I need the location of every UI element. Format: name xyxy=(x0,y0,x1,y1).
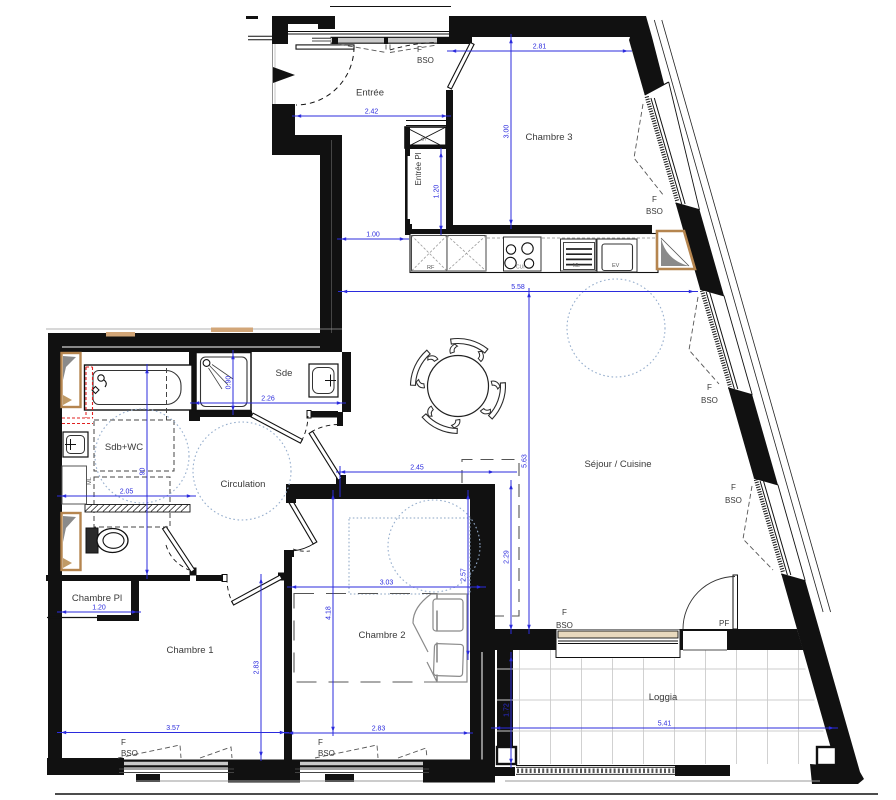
svg-text:4.18: 4.18 xyxy=(326,606,333,620)
svg-text:F: F xyxy=(417,45,422,54)
svg-text:BSO: BSO xyxy=(646,207,663,216)
svg-text:3.00: 3.00 xyxy=(504,125,511,139)
svg-text:Chambre 3: Chambre 3 xyxy=(526,132,573,143)
svg-text:ML: ML xyxy=(573,263,580,269)
svg-text:0.90: 0.90 xyxy=(226,376,233,390)
svg-text:5.63: 5.63 xyxy=(522,454,529,468)
svg-text:BSO: BSO xyxy=(318,749,335,758)
svg-text:2.26: 2.26 xyxy=(261,396,275,403)
svg-text:3.57: 3.57 xyxy=(166,725,180,732)
svg-text:2.83: 2.83 xyxy=(254,661,261,675)
svg-text:1.20: 1.20 xyxy=(92,605,106,612)
svg-text:EV: EV xyxy=(612,263,620,269)
svg-text:F: F xyxy=(707,383,712,392)
svg-text:PF: PF xyxy=(719,619,729,628)
svg-text:F: F xyxy=(562,608,567,617)
svg-text:BSO: BSO xyxy=(417,56,434,65)
svg-text:GT: GT xyxy=(421,137,428,142)
svg-text:2.57: 2.57 xyxy=(461,568,468,582)
svg-text:Loggia: Loggia xyxy=(649,692,678,703)
svg-text:Chambre 1: Chambre 1 xyxy=(167,645,214,656)
svg-text:Entrée: Entrée xyxy=(356,88,384,99)
svg-text:Sde: Sde xyxy=(276,368,293,379)
svg-text:5.58: 5.58 xyxy=(511,284,525,291)
svg-text:Séjour / Cuisine: Séjour / Cuisine xyxy=(584,459,651,470)
svg-text:2.29: 2.29 xyxy=(504,550,511,564)
svg-text:Sdb+WC: Sdb+WC xyxy=(105,442,143,453)
svg-text:Circulation: Circulation xyxy=(221,479,266,490)
svg-text:1.00: 1.00 xyxy=(366,232,380,239)
svg-text:BSO: BSO xyxy=(725,496,742,505)
svg-text:Entrée Pl: Entrée Pl xyxy=(414,152,423,185)
svg-text:2.81: 2.81 xyxy=(533,44,547,51)
svg-text:Chambre 2: Chambre 2 xyxy=(359,630,406,641)
svg-text:F: F xyxy=(731,483,736,492)
svg-text:CUI: CUI xyxy=(516,265,525,271)
svg-text:F: F xyxy=(121,738,126,747)
svg-text:Chambre Pl: Chambre Pl xyxy=(72,593,122,604)
svg-text:5.41: 5.41 xyxy=(658,721,672,728)
svg-text:BSO: BSO xyxy=(701,396,718,405)
svg-text:3.03: 3.03 xyxy=(380,580,394,587)
svg-text:2.42: 2.42 xyxy=(365,109,379,116)
svg-text:ML: ML xyxy=(87,477,93,485)
svg-text:F: F xyxy=(318,738,323,747)
svg-text:2.83: 2.83 xyxy=(372,726,386,733)
svg-text:RF: RF xyxy=(427,265,435,271)
svg-text:90: 90 xyxy=(140,468,147,476)
svg-text:1.20: 1.20 xyxy=(434,185,441,199)
svg-text:BSO: BSO xyxy=(121,749,138,758)
svg-text:BSO: BSO xyxy=(556,621,573,630)
svg-text:2.45: 2.45 xyxy=(410,465,424,472)
svg-text:1.72: 1.72 xyxy=(504,703,511,717)
svg-text:2.05: 2.05 xyxy=(120,489,134,496)
svg-text:F: F xyxy=(652,195,657,204)
